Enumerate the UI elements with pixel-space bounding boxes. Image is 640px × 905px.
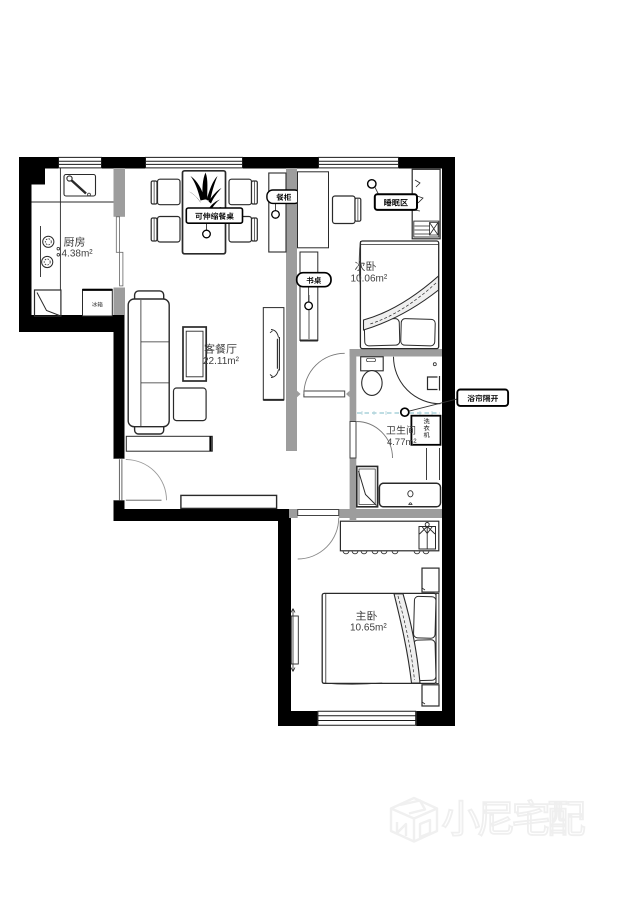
svg-text:4.38m²: 4.38m² [62,249,94,260]
svg-text:4.77m²: 4.77m² [387,437,417,448]
svg-text:22.11m²: 22.11m² [203,356,240,367]
svg-text:10.65m²: 10.65m² [350,622,387,633]
svg-text:10.06m²: 10.06m² [351,274,388,285]
